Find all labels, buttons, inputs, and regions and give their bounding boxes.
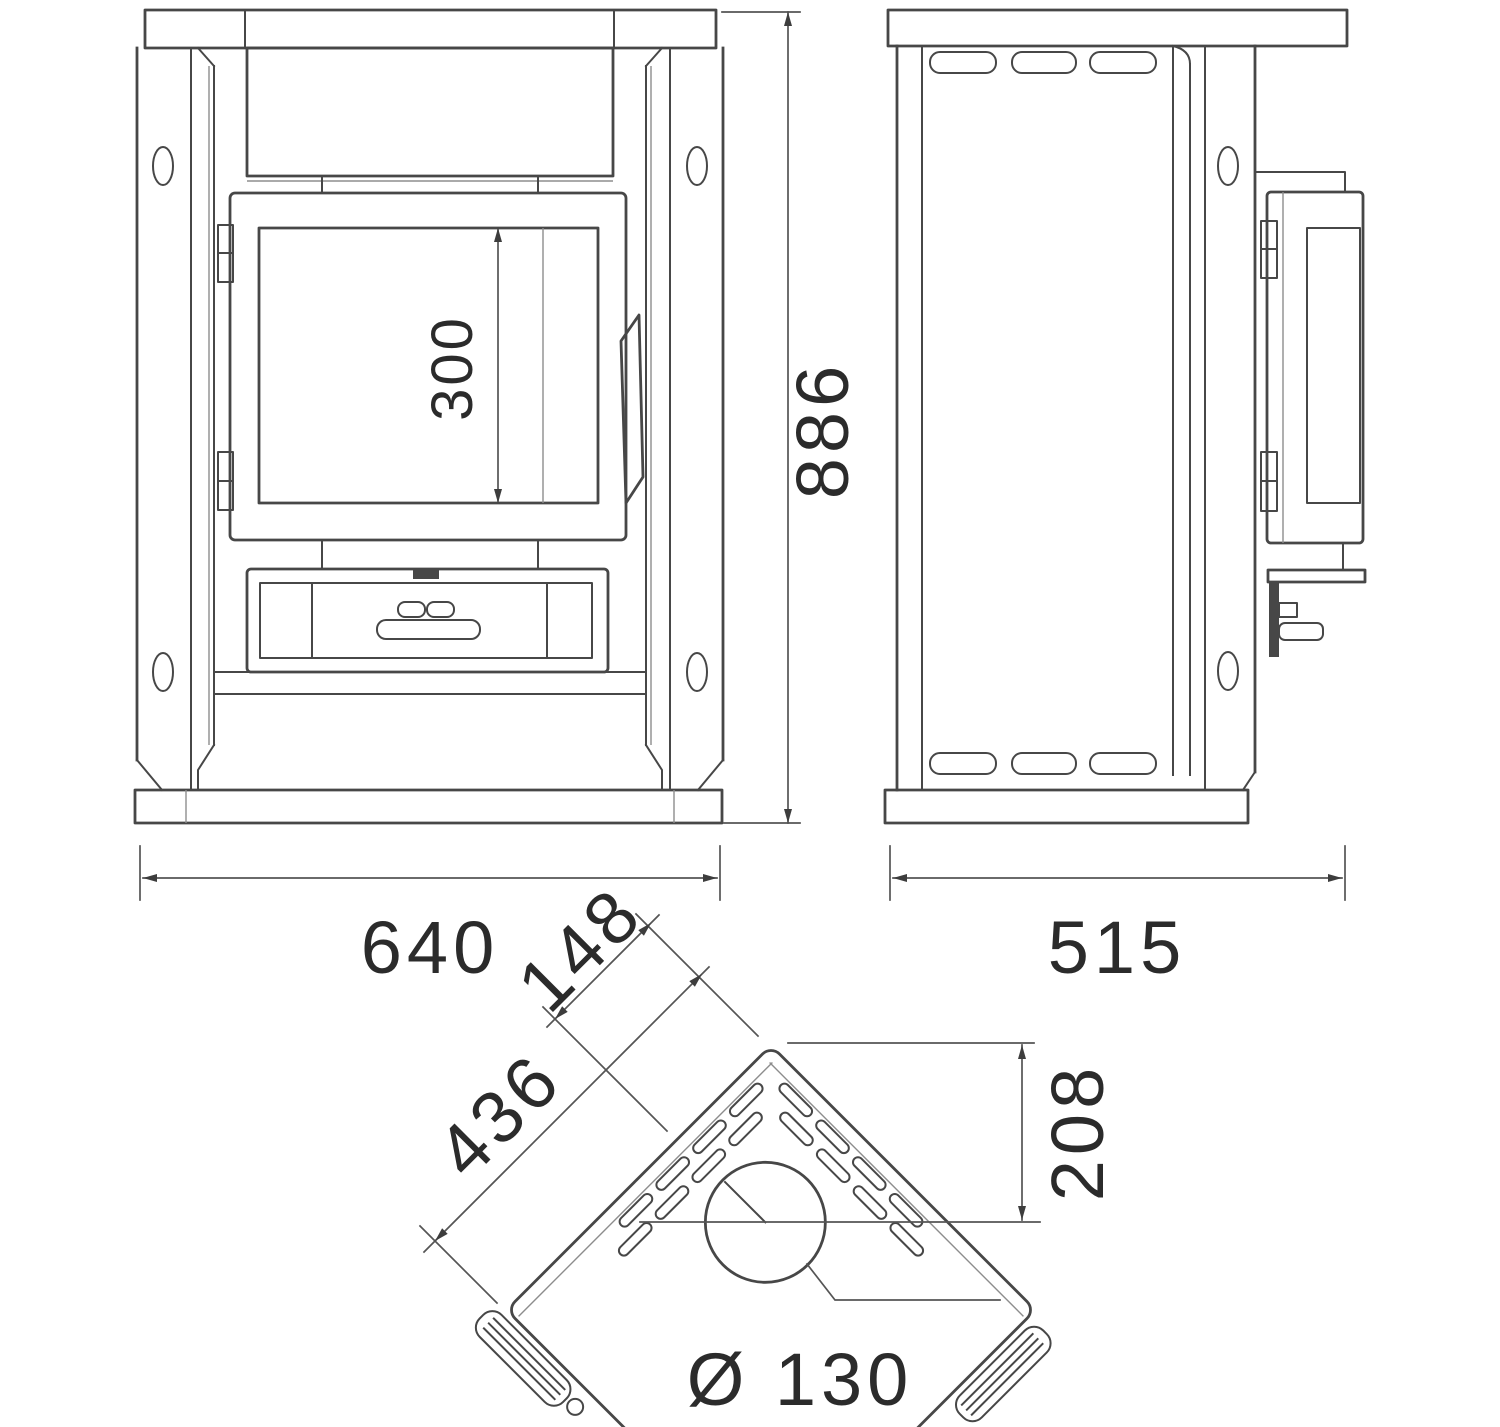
front-top-plate bbox=[145, 10, 716, 48]
plan-vent-slots-right bbox=[763, 1082, 939, 1258]
side-front-corner bbox=[1173, 46, 1255, 790]
front-right-vent-hole-top bbox=[687, 147, 707, 185]
drawing-canvas: 300 640 886 515 436 bbox=[0, 0, 1500, 1427]
door-handle bbox=[621, 315, 643, 503]
dim-side-depth: 515 bbox=[890, 846, 1345, 989]
side-handle-bracket bbox=[1268, 570, 1365, 582]
dim-label-side-depth: 515 bbox=[1048, 906, 1186, 989]
side-base bbox=[885, 790, 1248, 823]
side-hinge-top bbox=[1261, 221, 1277, 278]
dim-label-plan-flue-diameter: Ø 130 bbox=[687, 1338, 914, 1421]
dim-plan-flue-diameter: Ø 130 bbox=[687, 1264, 1000, 1421]
front-left-panel bbox=[137, 48, 214, 790]
side-riddling-lever bbox=[1269, 582, 1323, 657]
side-vent-hole-top bbox=[1218, 147, 1238, 185]
front-right-panel bbox=[646, 48, 723, 790]
front-left-vent-hole-bottom bbox=[153, 653, 173, 691]
dim-front-height: 886 bbox=[722, 12, 864, 823]
dim-label-plan-flue-offset: 208 bbox=[1036, 1063, 1119, 1201]
drawer-latch bbox=[413, 570, 439, 579]
side-view bbox=[885, 10, 1365, 823]
front-upper-panel bbox=[247, 48, 613, 193]
dim-glass-height: 300 bbox=[420, 228, 502, 503]
drawer-handle bbox=[377, 602, 480, 639]
plan-vent-slots-left bbox=[603, 1082, 779, 1258]
front-right-vent-hole-bottom bbox=[687, 653, 707, 691]
front-ash-drawer bbox=[214, 540, 646, 694]
front-left-vent-hole-top bbox=[153, 147, 173, 185]
dim-label-plan-corner-flat: 148 bbox=[502, 871, 659, 1028]
dim-label-plan-back-edge: 436 bbox=[421, 1037, 578, 1194]
side-door-profile bbox=[1255, 172, 1365, 657]
side-vent-slots-bottom bbox=[930, 753, 1156, 774]
side-top-plate bbox=[888, 10, 1347, 46]
side-hinge-bottom bbox=[1261, 452, 1277, 511]
stove-technical-drawing: 300 640 886 515 436 bbox=[0, 0, 1500, 1427]
plan-spacer-left bbox=[470, 1306, 590, 1426]
front-base bbox=[135, 790, 722, 823]
dim-label-front-width: 640 bbox=[361, 906, 499, 989]
side-vent-hole-bottom bbox=[1218, 652, 1238, 690]
plan-spacer-right bbox=[951, 1321, 1056, 1426]
side-vent-slots-top bbox=[930, 52, 1156, 73]
dim-label-glass-height: 300 bbox=[420, 315, 485, 421]
dim-label-front-height: 886 bbox=[781, 361, 864, 499]
